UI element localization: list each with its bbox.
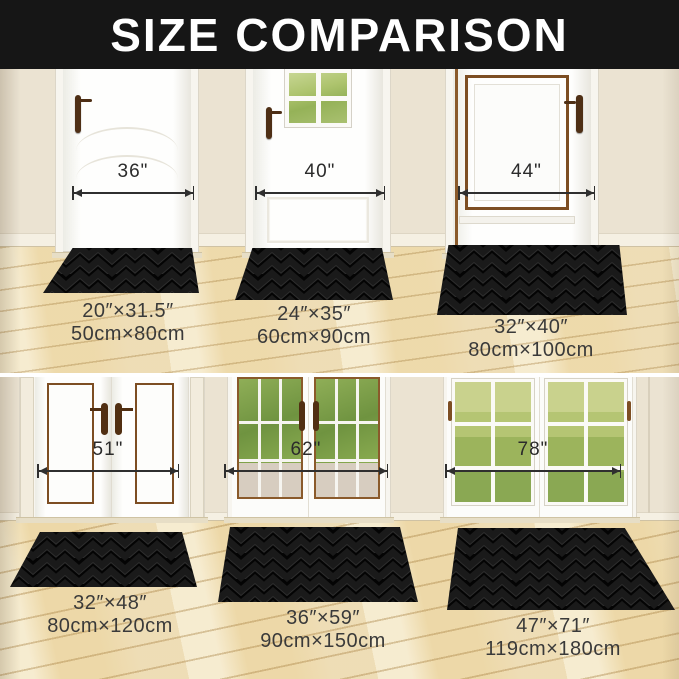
page-title: SIZE COMPARISON bbox=[110, 8, 569, 62]
mat-size-inches: 36″×59″ bbox=[223, 607, 423, 630]
mat-size-label-6: 47″×71″ 119cm×180cm bbox=[453, 615, 653, 661]
door-handle-lever bbox=[564, 101, 576, 104]
mat-size-cm: 50cm×80cm bbox=[28, 323, 228, 346]
doormat-32x48 bbox=[10, 532, 197, 587]
doormat-32x40 bbox=[437, 245, 627, 315]
mat-chevron-texture bbox=[235, 248, 393, 300]
comparison-row-bottom: 51" 62" 78" 32″×48″ bbox=[0, 377, 679, 679]
mat-chevron-texture bbox=[218, 527, 418, 602]
door-window bbox=[285, 69, 351, 127]
door-window bbox=[314, 377, 380, 499]
mat-size-label-4: 32″×48″ 80cm×120cm bbox=[10, 592, 210, 638]
dimension-line bbox=[72, 186, 194, 200]
comparison-row-top: 36" 40" 44" 20″×31.5 bbox=[0, 69, 679, 373]
doormat-36x59 bbox=[218, 527, 418, 602]
title-banner: SIZE COMPARISON bbox=[0, 0, 679, 69]
door-handle bbox=[101, 403, 108, 435]
dimension-arrow-44: 44" bbox=[458, 161, 595, 200]
size-comparison-infographic: SIZE COMPARISON bbox=[0, 0, 679, 679]
mat-size-label-3: 32″×40″ 80cm×100cm bbox=[431, 316, 631, 362]
doormat-24x35 bbox=[235, 248, 393, 300]
mat-size-label-2: 24″×35″ 60cm×90cm bbox=[214, 303, 414, 349]
mat-chevron-texture bbox=[437, 245, 627, 315]
sidelight bbox=[190, 377, 204, 518]
door-window bbox=[237, 377, 303, 499]
mat-size-inches: 24″×35″ bbox=[214, 303, 414, 326]
door-handle bbox=[448, 401, 452, 421]
door-handle-lever bbox=[122, 408, 133, 411]
dimension-arrow-36: 36" bbox=[72, 161, 194, 200]
mat-size-inches: 32″×40″ bbox=[431, 316, 631, 339]
door-handle bbox=[627, 401, 631, 421]
dimension-label: 44" bbox=[458, 161, 595, 183]
mat-size-inches: 20″×31.5″ bbox=[28, 300, 228, 323]
mat-size-cm: 90cm×150cm bbox=[223, 630, 423, 653]
door-handle bbox=[576, 95, 583, 133]
dimension-arrow-62: 62" bbox=[224, 439, 388, 478]
mat-size-label-5: 36″×59″ 90cm×150cm bbox=[223, 607, 423, 653]
dimension-line bbox=[255, 186, 385, 200]
door-sill-molding bbox=[459, 216, 575, 224]
dimension-arrow-78: 78" bbox=[445, 439, 621, 478]
dimension-label: 62" bbox=[224, 439, 388, 461]
dimension-line bbox=[458, 186, 595, 200]
dimension-label: 40" bbox=[255, 161, 385, 183]
mat-size-label-1: 20″×31.5″ 50cm×80cm bbox=[28, 300, 228, 346]
door-handle bbox=[115, 403, 122, 435]
mat-size-cm: 80cm×100cm bbox=[431, 339, 631, 362]
row-divider bbox=[0, 373, 679, 377]
mat-size-cm: 60cm×90cm bbox=[214, 326, 414, 349]
door-handle-lever bbox=[79, 99, 92, 102]
dimension-label: 51" bbox=[37, 439, 179, 461]
dimension-arrow-40: 40" bbox=[255, 161, 385, 200]
dimension-label: 78" bbox=[445, 439, 621, 461]
mat-size-inches: 32″×48″ bbox=[10, 592, 210, 615]
door-molding-arc bbox=[76, 127, 178, 151]
dimension-line bbox=[37, 464, 179, 478]
mat-size-cm: 119cm×180cm bbox=[453, 638, 653, 661]
dimension-arrow-51: 51" bbox=[37, 439, 179, 478]
wall-seam bbox=[648, 377, 650, 513]
door-handle-lever bbox=[270, 111, 282, 114]
sidelight bbox=[20, 377, 34, 518]
mat-chevron-texture bbox=[10, 532, 197, 587]
door-recessed-panel bbox=[267, 197, 368, 243]
door-handle bbox=[313, 401, 319, 431]
dimension-label: 36" bbox=[72, 161, 194, 183]
dimension-line bbox=[445, 464, 621, 478]
door-handle bbox=[299, 401, 305, 431]
mat-size-inches: 47″×71″ bbox=[453, 615, 653, 638]
door-handle-lever bbox=[90, 408, 101, 411]
dimension-line bbox=[224, 464, 388, 478]
mat-size-cm: 80cm×120cm bbox=[10, 615, 210, 638]
